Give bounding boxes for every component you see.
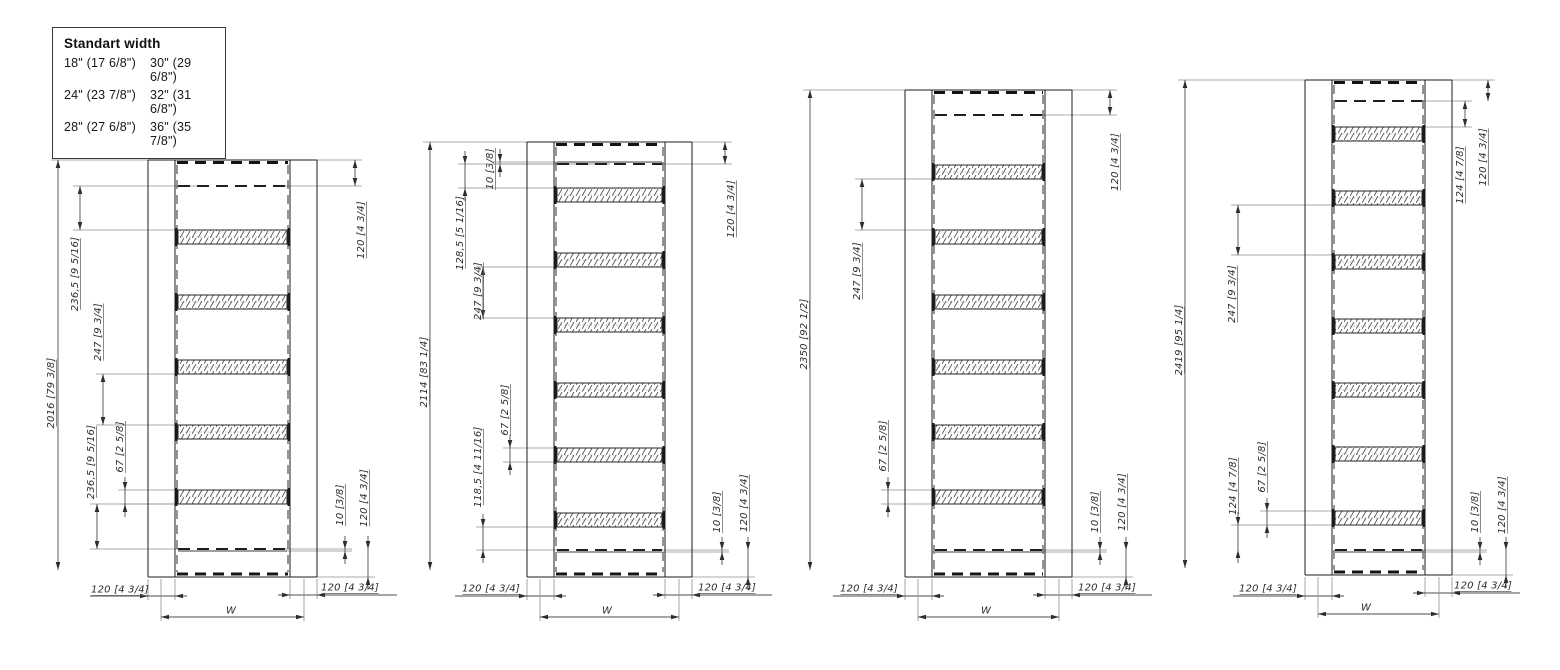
dimension-arrow	[1265, 503, 1270, 511]
dim-top-right-offset: 120 [4 3/4]	[1036, 90, 1121, 191]
dimension-arrow	[1478, 552, 1483, 560]
dim-bottom-right-offset: 120 [4 3/4]	[1452, 476, 1513, 588]
dim-label-overall-width: W	[981, 606, 992, 617]
dim-label-left-rail-width: 120 [4 3/4]	[1239, 584, 1297, 595]
dimension-arrow	[808, 90, 813, 98]
dim-overall-width: W	[918, 579, 1059, 621]
dimension-arrow	[498, 154, 503, 162]
dimension-arrow	[481, 550, 486, 558]
dimension-arrow	[343, 551, 348, 559]
dim-overall-width: W	[1318, 577, 1439, 618]
drawing-1-height-2016: 2016 [79 3/8]236,5 [9 5/16]247 [9 3/4]23…	[46, 160, 397, 621]
dim-label-hidden-line-offset: 10 [3/8]	[1090, 491, 1101, 532]
dimension-arrow	[78, 186, 83, 194]
dim-bottom-gap: 118,5 [4 11/16]	[473, 427, 610, 563]
dimension-arrow	[282, 593, 290, 598]
ladder-frame	[148, 160, 317, 577]
dim-label-rung-gap: 247 [9 3/4]	[93, 303, 104, 361]
ladder-frame	[527, 142, 692, 577]
dim-label-hidden-line-offset: 10 [3/8]	[1470, 491, 1481, 532]
dim-overall-height: 2114 [83 1/4]	[419, 142, 554, 570]
dim-label-bottom-gap: 236,5 [9 5/16]	[86, 425, 97, 499]
dim-label-bottom-right-offset: 120 [4 3/4]	[739, 474, 750, 532]
dim-bottom-right-offset: 120 [4 3/4]	[317, 469, 375, 590]
dim-label-right-rail-width: 120 [4 3/4]	[1078, 583, 1136, 594]
ladder-frame	[1305, 80, 1452, 575]
dim-label-bottom-gap: 124 [4 7/8]	[1228, 457, 1239, 515]
dim-overall-width: W	[540, 579, 679, 621]
drawing-2-height-2114: 2114 [83 1/4]10 [3/8]128,5 [5 1/16]247 […	[419, 142, 772, 621]
width-option: 30" (29 6/8")	[150, 56, 214, 84]
rung-heating-element	[1335, 319, 1422, 333]
width-option: 36" (35 7/8")	[150, 120, 214, 148]
drawing-3-height-2350: 2350 [92 1/2]247 [9 3/4]67 [2 5/8]120 [4…	[799, 90, 1152, 621]
dim-label-top-gap: 236,5 [9 5/16]	[70, 237, 81, 311]
dim-label-hidden-line-offset: 10 [3/8]	[712, 491, 723, 532]
dim-label-top-right-offset: 120 [4 3/4]	[726, 180, 737, 238]
technical-drawing-sheet: 2016 [79 3/8]236,5 [9 5/16]247 [9 3/4]23…	[0, 0, 1560, 670]
width-option: 18" (17 6/8")	[64, 56, 150, 84]
dim-bottom-gap: 124 [4 7/8]	[1228, 457, 1368, 563]
dimension-arrow	[1108, 107, 1113, 115]
dim-label-rung-height: 67 [2 5/8]	[878, 420, 889, 471]
dimension-arrow	[932, 594, 940, 599]
dim-overall-height: 2419 [95 1/4]	[1174, 80, 1332, 568]
dim-label-rung-height: 67 [2 5/8]	[500, 384, 511, 435]
dimension-arrow	[657, 593, 665, 598]
dim-top-right-offset: 120 [4 3/4]	[280, 160, 367, 259]
dimension-arrow	[860, 179, 865, 187]
dimension-arrow	[481, 519, 486, 527]
dimension-arrow	[428, 562, 433, 570]
dim-top-hidden-offset: 10 [3/8]	[485, 148, 610, 190]
dimension-arrow	[1265, 525, 1270, 533]
dimension-arrow	[1108, 90, 1113, 98]
dimension-arrow	[1124, 542, 1129, 550]
dim-overall-height: 2350 [92 1/2]	[799, 90, 932, 570]
dim-label-top-right-offset: 120 [4 3/4]	[356, 201, 367, 259]
legend-title: Standart width	[64, 36, 214, 51]
dim-label-left-rail-width: 120 [4 3/4]	[91, 585, 149, 596]
width-option: 28" (27 6/8")	[64, 120, 150, 148]
dimension-arrow	[296, 615, 304, 620]
dimension-arrow	[428, 142, 433, 150]
dimension-arrow	[1417, 591, 1425, 596]
dimension-arrow	[1318, 612, 1326, 617]
dimension-arrow	[366, 541, 371, 549]
dim-label-top-right-offset: 120 [4 3/4]	[1110, 133, 1121, 191]
dimension-arrow	[1037, 593, 1045, 598]
dim-right-rail-width: 120 [4 3/4]	[1413, 577, 1520, 597]
dimension-arrow	[918, 615, 926, 620]
dimension-arrow	[508, 462, 513, 470]
dimension-arrow	[95, 504, 100, 512]
dim-label-overall-width: W	[602, 606, 613, 617]
dim-label-overall-height: 2114 [83 1/4]	[419, 336, 430, 407]
dimension-arrow	[353, 178, 358, 186]
dimension-arrow	[1504, 542, 1509, 550]
dimension-arrow	[746, 542, 751, 550]
dimension-arrow	[95, 541, 100, 549]
dim-left-rail-width: 120 [4 3/4]	[455, 579, 566, 600]
dimension-arrow	[886, 504, 891, 512]
dimension-arrow	[1183, 560, 1188, 568]
dimension-arrow	[101, 374, 106, 382]
dim-bottom-right-offset: 120 [4 3/4]	[692, 474, 755, 590]
dimensions: 2419 [95 1/4]247 [9 3/4]124 [4 7/8]67 [2…	[1174, 80, 1520, 618]
dim-label-top-hidden-offset: 10 [3/8]	[485, 148, 496, 189]
dimension-arrow	[1478, 542, 1483, 550]
dim-left-rail-width: 120 [4 3/4]	[1233, 577, 1344, 600]
dimension-arrow	[519, 594, 527, 599]
dimension-arrow	[353, 160, 358, 168]
dim-label-top-gap: 128,5 [5 1/16]	[455, 196, 466, 270]
rung-heating-element	[1335, 127, 1422, 141]
dim-top-right-offset: 120 [4 3/4]	[656, 142, 737, 238]
dimension-arrow	[1236, 550, 1241, 558]
dimension-arrow	[540, 615, 548, 620]
dimension-arrow	[56, 562, 61, 570]
dim-bottom-gap: 236,5 [9 5/16]	[86, 425, 205, 549]
dimension-arrow	[1486, 93, 1491, 101]
dimension-arrow	[1297, 594, 1305, 599]
dim-label-bottom-right-offset: 120 [4 3/4]	[1497, 476, 1508, 534]
dimension-arrow	[808, 562, 813, 570]
dim-overall-width: W	[161, 579, 304, 621]
dim-label-right-rail-width: 120 [4 3/4]	[1454, 581, 1512, 592]
width-option: 24" (23 7/8")	[64, 88, 150, 116]
ladder-drawings-canvas: 2016 [79 3/8]236,5 [9 5/16]247 [9 3/4]23…	[0, 0, 1560, 670]
dimension-arrow	[1183, 80, 1188, 88]
dimension-arrow	[1098, 552, 1103, 560]
standard-width-legend: Standart width 18" (17 6/8") 30" (29 6/8…	[52, 27, 226, 159]
dimension-arrow	[101, 417, 106, 425]
dimension-arrow	[860, 222, 865, 230]
dimension-arrow	[720, 542, 725, 550]
dim-label-rung-gap: 247 [9 3/4]	[473, 262, 484, 320]
dimension-arrow	[1463, 119, 1468, 127]
dimension-arrow	[1463, 101, 1468, 109]
dimension-arrow	[1486, 80, 1491, 88]
dimension-arrow	[343, 541, 348, 549]
dim-bottom-right-offset: 120 [4 3/4]	[1072, 473, 1133, 590]
dimension-arrow	[1051, 615, 1059, 620]
dim-right-rail-width: 120 [4 3/4]	[1033, 579, 1152, 599]
dim-label-bottom-gap: 118,5 [4 11/16]	[473, 427, 484, 508]
dimension-arrow	[723, 156, 728, 164]
dimension-arrow	[78, 222, 83, 230]
dim-label-bottom-right-offset: 120 [4 3/4]	[359, 469, 370, 527]
dimension-arrow	[720, 552, 725, 560]
dim-label-rung-height: 67 [2 5/8]	[115, 421, 126, 472]
dim-label-overall-height: 2016 [79 3/8]	[46, 357, 57, 428]
dim-top-gap: 128,5 [5 1/16]	[455, 151, 610, 270]
dimension-arrow	[508, 440, 513, 448]
dim-label-left-rail-width: 120 [4 3/4]	[462, 584, 520, 595]
dimension-arrow	[1236, 517, 1241, 525]
dimension-arrow	[1236, 205, 1241, 213]
dimensions: 2016 [79 3/8]236,5 [9 5/16]247 [9 3/4]23…	[46, 160, 397, 621]
rung-heating-element	[1335, 511, 1422, 525]
dimension-arrow	[897, 594, 905, 599]
dim-label-right-rail-width: 120 [4 3/4]	[698, 583, 756, 594]
dimension-arrow	[498, 164, 503, 172]
dim-label-overall-width: W	[1361, 603, 1372, 614]
dimension-arrow	[1236, 247, 1241, 255]
dim-label-top-gap: 124 [4 7/8]	[1455, 146, 1466, 204]
dim-rung-gap: 247 [9 3/4]	[473, 262, 610, 320]
dimension-arrow	[1332, 594, 1340, 599]
dimension-arrow	[886, 482, 891, 490]
dimension-arrow	[161, 615, 169, 620]
dimension-arrow	[463, 156, 468, 164]
dimension-arrow	[123, 482, 128, 490]
dimension-arrow	[554, 594, 562, 599]
dim-right-rail-width: 120 [4 3/4]	[278, 579, 397, 599]
dim-label-overall-height: 2350 [92 1/2]	[799, 298, 810, 369]
dim-label-rung-height: 67 [2 5/8]	[1257, 441, 1268, 492]
dim-label-bottom-right-offset: 120 [4 3/4]	[1117, 473, 1128, 531]
dim-label-rung-gap: 247 [9 3/4]	[852, 242, 863, 300]
dimension-arrow	[463, 188, 468, 196]
dimension-arrow	[723, 142, 728, 150]
dim-label-right-rail-width: 120 [4 3/4]	[321, 583, 379, 594]
dimension-arrow	[56, 160, 61, 168]
dim-right-rail-width: 120 [4 3/4]	[653, 579, 772, 599]
rung-heating-element	[1335, 255, 1422, 269]
dim-left-rail-width: 120 [4 3/4]	[833, 579, 944, 600]
dim-label-overall-width: W	[226, 606, 237, 617]
dim-label-left-rail-width: 120 [4 3/4]	[840, 584, 898, 595]
rung-heating-element	[1335, 447, 1422, 461]
dim-left-rail-width: 120 [4 3/4]	[90, 579, 187, 600]
dim-label-top-right-offset: 120 [4 3/4]	[1478, 128, 1489, 186]
dimension-arrow	[123, 504, 128, 512]
rung-heating-element	[1335, 191, 1422, 205]
legend-values: 18" (17 6/8") 30" (29 6/8") 24" (23 7/8"…	[64, 56, 214, 148]
dimension-arrow	[1098, 542, 1103, 550]
dim-label-hidden-line-offset: 10 [3/8]	[335, 484, 346, 525]
dim-hidden-line-offset: 10 [3/8]	[280, 484, 352, 564]
dim-top-gap: 236,5 [9 5/16]	[70, 186, 205, 311]
dim-label-overall-height: 2419 [95 1/4]	[1174, 304, 1185, 375]
dimension-arrow	[671, 615, 679, 620]
rung-heating-element	[1335, 383, 1422, 397]
width-option: 32" (31 6/8")	[150, 88, 214, 116]
drawing-4-height-2419: 2419 [95 1/4]247 [9 3/4]124 [4 7/8]67 [2…	[1174, 80, 1520, 618]
dimension-arrow	[175, 594, 183, 599]
dimension-arrow	[1431, 612, 1439, 617]
dim-label-rung-gap: 247 [9 3/4]	[1227, 265, 1238, 323]
